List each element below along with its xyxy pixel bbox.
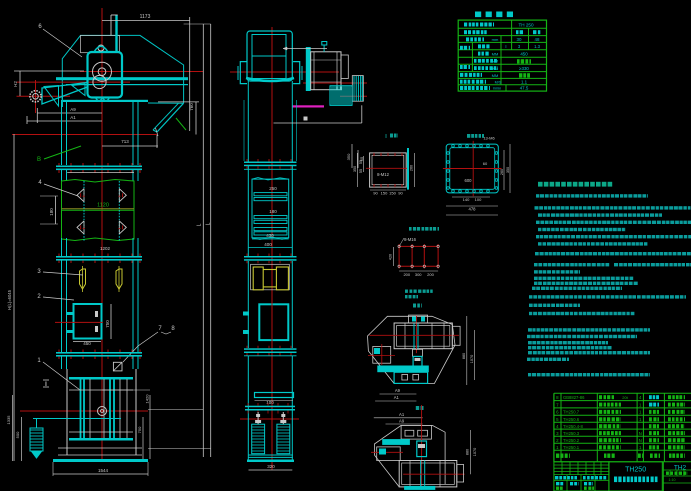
svg-text:60: 60 (483, 161, 488, 166)
svg-text:100: 100 (475, 197, 482, 202)
svg-text:A9: A9 (70, 107, 76, 112)
svg-text:1:10: 1:10 (669, 478, 676, 482)
svg-text:713: 713 (121, 139, 129, 144)
svg-text:1335: 1335 (6, 415, 11, 425)
svg-text:750: 750 (105, 320, 110, 328)
svg-text:430: 430 (266, 233, 274, 238)
svg-text:48: 48 (535, 37, 540, 42)
svg-text:450: 450 (520, 51, 528, 56)
svg-text:47.5: 47.5 (520, 86, 529, 91)
svg-text:1.3: 1.3 (534, 44, 540, 49)
svg-text:mm: mm (492, 37, 499, 42)
svg-text:260: 260 (500, 169, 504, 175)
svg-text:I: I (505, 44, 506, 49)
svg-text:A9: A9 (399, 419, 405, 424)
svg-text:TH250.2: TH250.2 (563, 438, 580, 443)
svg-text:760: 760 (189, 103, 194, 111)
svg-text:1420: 1420 (145, 394, 150, 404)
svg-text:MM: MM (492, 60, 498, 64)
svg-text:420: 420 (389, 254, 393, 260)
svg-text:L: L (197, 223, 203, 226)
svg-text:150: 150 (381, 191, 388, 196)
svg-text:TH250.3: TH250.3 (563, 431, 580, 436)
svg-text:N: N (639, 431, 642, 436)
svg-text:1.1: 1.1 (521, 79, 528, 84)
svg-text:8-M12: 8-M12 (377, 172, 390, 177)
svg-text:90: 90 (398, 191, 403, 196)
svg-text:A9: A9 (395, 388, 401, 393)
svg-text:r/min: r/min (493, 87, 501, 91)
svg-text:GB8827-86: GB8827-86 (563, 395, 585, 400)
svg-text:KN: KN (492, 67, 498, 71)
svg-text:20t: 20t (622, 395, 628, 400)
svg-text:320: 320 (267, 464, 275, 469)
svg-text:M/S: M/S (495, 80, 502, 84)
svg-text:880: 880 (462, 353, 466, 359)
svg-text:13-M6: 13-M6 (483, 136, 495, 141)
svg-text:180: 180 (269, 209, 277, 214)
svg-text:600: 600 (465, 178, 473, 183)
svg-text:250: 250 (269, 186, 277, 191)
svg-text:A1: A1 (399, 412, 405, 417)
svg-text:55: 55 (359, 160, 363, 164)
svg-text:55: 55 (359, 169, 363, 173)
svg-text:200: 200 (403, 272, 410, 277)
svg-text:TH250: TH250 (625, 466, 646, 473)
svg-text:MM: MM (492, 51, 499, 56)
svg-text:L: L (206, 222, 212, 225)
svg-text:300: 300 (415, 272, 422, 277)
svg-text:TH2: TH2 (674, 464, 687, 471)
svg-text:1544: 1544 (98, 468, 109, 473)
svg-text:350: 350 (506, 167, 510, 173)
svg-text:180: 180 (49, 208, 54, 216)
svg-text:1070: 1070 (470, 355, 474, 363)
svg-text:≥330: ≥330 (519, 66, 529, 71)
svg-text:N: N (639, 438, 642, 443)
svg-text:8-M16: 8-M16 (404, 237, 417, 242)
svg-text:478: 478 (469, 207, 477, 212)
svg-text:1120: 1120 (97, 203, 109, 209)
svg-text:MM: MM (492, 73, 499, 78)
svg-text:TH 250: TH 250 (518, 22, 534, 27)
svg-text:880: 880 (466, 449, 470, 455)
svg-text:1173: 1173 (140, 14, 151, 20)
svg-text:400: 400 (264, 242, 272, 247)
svg-text:500: 500 (15, 431, 20, 438)
svg-text:H(L)=6045: H(L)=6045 (7, 289, 12, 310)
svg-text:TH250.1: TH250.1 (563, 445, 580, 450)
svg-text:A1: A1 (394, 395, 400, 400)
svg-text:200: 200 (427, 272, 434, 277)
svg-text:350: 350 (353, 166, 357, 172)
svg-text:140: 140 (463, 197, 470, 202)
svg-text:A1: A1 (70, 115, 76, 120)
svg-text:350: 350 (346, 153, 351, 160)
svg-text:TH250.4-8: TH250.4-8 (563, 424, 583, 429)
svg-text:90: 90 (373, 191, 378, 196)
svg-text:260: 260 (410, 165, 414, 171)
svg-text:150: 150 (389, 191, 396, 196)
svg-text:30: 30 (517, 37, 522, 42)
svg-text:TH250.7: TH250.7 (563, 410, 580, 415)
svg-text:1070: 1070 (473, 448, 477, 456)
svg-text:750: 750 (137, 426, 142, 433)
svg-text:H2: H2 (13, 81, 18, 87)
svg-text:B: B (37, 157, 41, 163)
svg-text:TH250.6: TH250.6 (563, 417, 580, 422)
svg-text:1202: 1202 (100, 246, 111, 251)
